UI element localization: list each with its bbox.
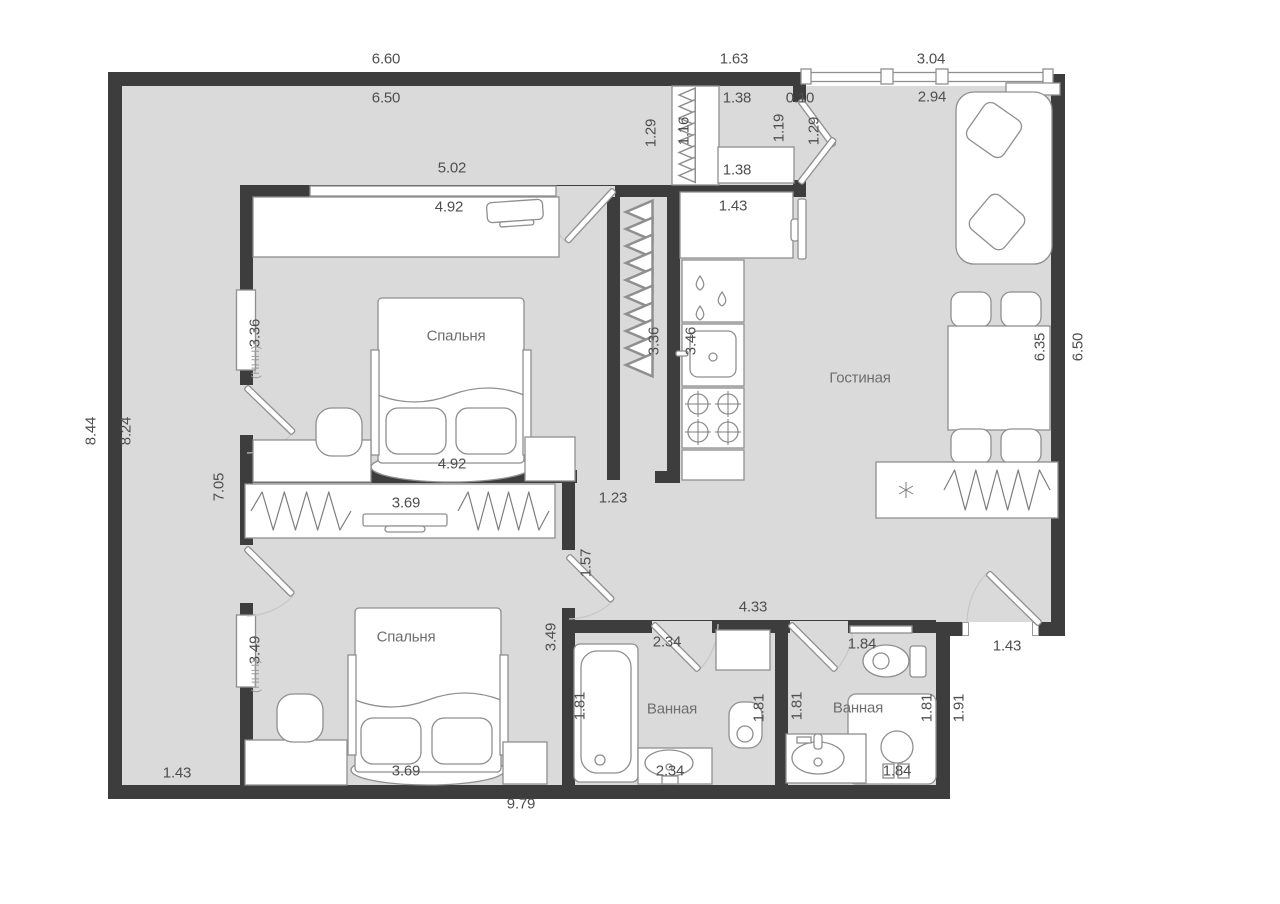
room-label: Спальня (427, 328, 486, 345)
dimension-label: 1.81 (919, 694, 936, 722)
dimension-label: 1.23 (599, 490, 627, 507)
dimension-label: 3.49 (543, 623, 560, 651)
dimension-label: 1.81 (751, 694, 768, 722)
dimension-label: 5.02 (438, 160, 466, 177)
dimension-label: 1.84 (883, 763, 911, 780)
wall-balcony (240, 185, 253, 785)
dimension-label: 2.34 (656, 763, 684, 780)
dimension-label: 2.94 (918, 89, 946, 106)
wall-right (1051, 74, 1065, 636)
room-label: Спальня (377, 629, 436, 646)
dimension-label: 1.29 (643, 119, 660, 147)
wall-bedroom1-top (240, 185, 806, 197)
wall-top (108, 72, 806, 86)
dimension-label: 4.92 (435, 199, 463, 216)
dimension-label: 9.79 (507, 796, 535, 813)
opening-bedroom1-door (555, 186, 615, 197)
dimension-label: 3.46 (683, 327, 700, 355)
dimension-label: 3.36 (646, 327, 663, 355)
dimension-label: 6.50 (1070, 333, 1087, 361)
dimension-label: 1.43 (993, 638, 1021, 655)
window-band-top (801, 69, 1053, 84)
dimension-label: 8.24 (118, 417, 135, 445)
wall-bedroom2-right (562, 483, 575, 785)
wall-right-lower (936, 622, 950, 792)
entry-door-jamb-left (962, 622, 969, 636)
opening-balcony-door-bedroom1 (240, 385, 253, 435)
dimension-label: 1.81 (572, 692, 589, 720)
dimension-label: 1.91 (951, 694, 968, 722)
dimension-label: 1.43 (163, 765, 191, 782)
room-label: Ванная (833, 700, 883, 717)
entry-door-jamb-right (1032, 622, 1039, 636)
dimension-label: 3.36 (247, 319, 264, 347)
room-label: Гостиная (829, 370, 890, 387)
dimension-label: 3.69 (392, 763, 420, 780)
dimension-label: 1.57 (578, 549, 595, 577)
wall-livingroom-bottom-right (1038, 622, 1065, 636)
dimension-label: 3.69 (392, 495, 420, 512)
opening-balcony-door-bedroom2 (240, 545, 253, 603)
dimension-label: 4.33 (739, 599, 767, 616)
opening-bathroom2-door (790, 621, 848, 633)
wall-kitchen-stub (655, 471, 680, 483)
dimension-label: 1.38 (723, 162, 751, 179)
dimension-label: 2.34 (653, 634, 681, 651)
dimension-label: 1.19 (771, 114, 788, 142)
opening-bathroom1-door (652, 621, 712, 633)
radiator-mark: (ННН) (250, 659, 262, 693)
dimension-label: 4.92 (438, 456, 466, 473)
dimension-label: 3.04 (917, 51, 945, 68)
dimension-label: 7.05 (211, 473, 228, 501)
dimension-label: 1.43 (719, 198, 747, 215)
wall-bathrooms-divider (775, 633, 788, 785)
dimension-label: 1.84 (848, 636, 876, 653)
wall-bedroom1-right (607, 197, 620, 480)
dimension-label: 6.35 (1032, 333, 1049, 361)
floor-plan: 6.601.633.046.501.380.102.941.161.291.19… (0, 0, 1280, 904)
dimension-label: 6.60 (372, 51, 400, 68)
dimension-label: 1.29 (806, 117, 823, 145)
wall-hall-right-bottom (793, 180, 806, 197)
radiator-mark: (ННН) (250, 345, 262, 379)
dimension-label: 1.16 (676, 117, 693, 145)
wall-bathrooms-top (575, 620, 936, 633)
dimension-label: 1.81 (789, 692, 806, 720)
opening-bedroom2-door (562, 550, 575, 608)
dimension-label: 0.10 (786, 90, 814, 107)
wall-kitchen (667, 197, 680, 483)
dimension-label: 8.44 (83, 417, 100, 445)
dimension-label: 1.63 (720, 51, 748, 68)
dimension-label: 6.50 (372, 90, 400, 107)
wall-bedrooms-divider (240, 470, 577, 483)
dimension-label: 1.38 (723, 90, 751, 107)
room-label: Ванная (647, 701, 697, 718)
